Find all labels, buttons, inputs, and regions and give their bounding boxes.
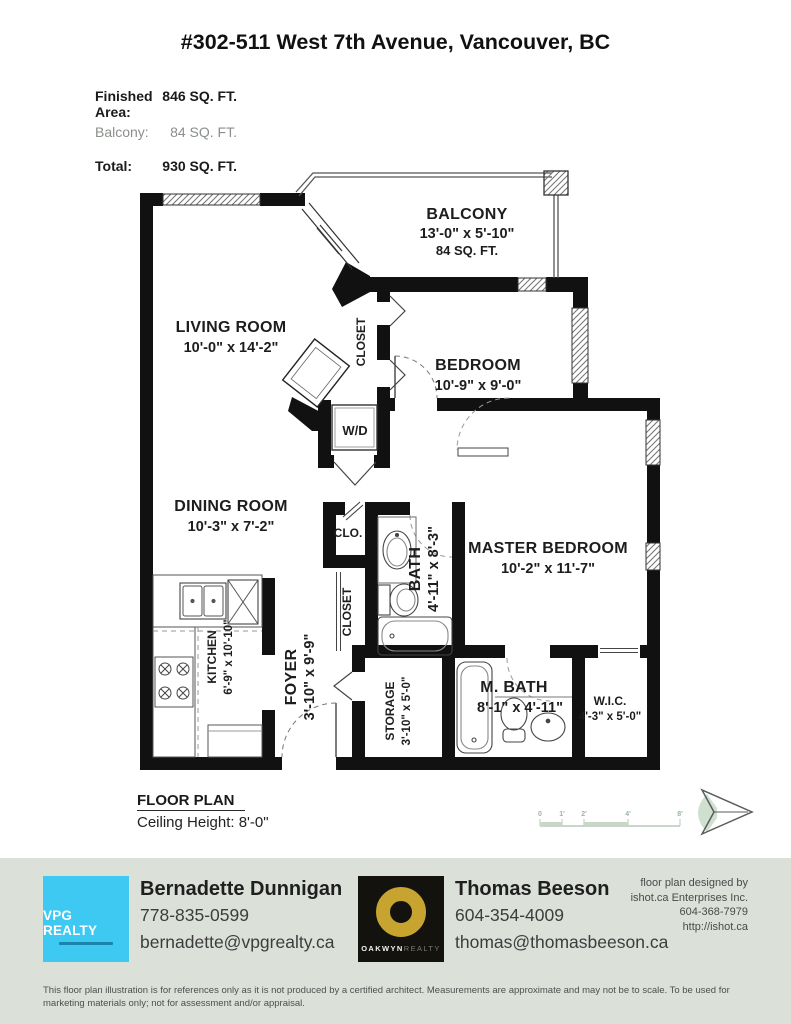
designer-credit: floor plan designed by ishot.ca Enterpri…: [518, 876, 748, 934]
dining-room-label: DINING ROOM: [174, 498, 288, 515]
oakwyn-realty-logo: OAKWYNREALTY: [358, 876, 444, 962]
vpg-realty-logo-text: VPG REALTY: [43, 908, 129, 938]
bedroom-dims: 10'-9" x 9'-0": [435, 378, 522, 394]
balcony-railing: [296, 171, 568, 278]
master-bedroom-label: MASTER BEDROOM: [468, 540, 628, 557]
master-bedroom-dims: 10'-2" x 11'-7": [501, 561, 595, 577]
bath-dims: 4'-11" x 8'-3": [426, 526, 442, 612]
area-label: Balcony:: [95, 124, 149, 140]
oakwyn-logo-text-secondary: REALTY: [404, 944, 441, 953]
living-room-dims: 10'-0" x 14'-2": [184, 340, 279, 356]
scale-tick: 1': [559, 811, 565, 818]
scale-tick: 4': [625, 811, 631, 818]
balcony-area: 84 SQ. FT.: [436, 243, 498, 258]
bedroom-label: BEDROOM: [435, 357, 521, 374]
area-value: 846 SQ. FT.: [159, 88, 237, 120]
area-label: Total:: [95, 158, 132, 174]
master-bath-label: M. BATH: [480, 679, 548, 696]
area-row-balcony: Balcony: 84 SQ. FT.: [95, 124, 237, 140]
balcony-label: BALCONY: [426, 206, 507, 223]
living-room-label: LIVING ROOM: [176, 319, 287, 336]
page-title: #302-511 West 7th Avenue, Vancouver, BC: [0, 30, 791, 55]
foyer-dims: 3'-10" x 9'-9": [302, 634, 318, 721]
balcony-dims: 13'-0" x 5'-10": [420, 226, 515, 242]
vpg-realty-logo: VPG REALTY: [43, 876, 129, 962]
credit-line: 604-368-7979: [518, 905, 748, 920]
vpg-tagline-illegible: [59, 942, 113, 945]
storage-dims: 3'-10" x 5'-0": [401, 677, 413, 746]
scale-tick: 2': [581, 811, 587, 818]
credit-line: ishot.ca Enterprises Inc.: [518, 891, 748, 906]
scale-bar: 0 1' 2' 4' 8': [538, 811, 683, 826]
master-bath-dims: 8'-1" x 4'-11": [477, 700, 563, 716]
area-label: Finished Area:: [95, 88, 159, 120]
clo-label: CLO.: [334, 526, 363, 540]
area-value: 84 SQ. FT.: [159, 124, 237, 140]
credit-line: http://ishot.ca: [518, 920, 748, 935]
wic-label: W.I.C.: [594, 694, 627, 708]
dining-room-dims: 10'-3" x 7'-2": [188, 519, 275, 535]
plan-caption-title: FLOOR PLAN: [137, 792, 245, 811]
wic-dims: 4'-3" x 5'-0": [579, 711, 641, 723]
scale-tick: 8': [677, 811, 683, 818]
storage-label: STORAGE: [383, 681, 397, 740]
foyer-label: FOYER: [283, 649, 300, 706]
plan-caption-ceiling: Ceiling Height: 8'-0": [137, 814, 269, 831]
oakwyn-ring-icon: [376, 887, 426, 937]
scale-tick: 0: [538, 811, 542, 818]
foyer-closet-label: CLOSET: [340, 587, 354, 636]
bedroom-closet-label: CLOSET: [354, 317, 368, 366]
credit-line: floor plan designed by: [518, 876, 748, 891]
fireplace: [283, 339, 350, 407]
floorplan-flyer-page: { "header": { "title": "#302-511 West 7t…: [0, 0, 791, 1024]
wd-label: W/D: [342, 423, 367, 438]
scale-and-compass: 0 1' 2' 4' 8': [535, 780, 765, 850]
floorplan-drawing: BALCONY 13'-0" x 5'-10" 84 SQ. FT. LIVIN…: [140, 165, 665, 795]
area-row-finished: Finished Area: 846 SQ. FT.: [95, 88, 237, 120]
kitchen-label: KITCHEN: [205, 630, 219, 683]
plan-caption: FLOOR PLAN Ceiling Height: 8'-0": [137, 792, 269, 831]
oakwyn-logo-text: OAKWYNREALTY: [361, 944, 441, 953]
oakwyn-logo-text-primary: OAKWYN: [361, 944, 404, 953]
kitchen-dims: 6'-9" x 10'-10": [223, 619, 235, 694]
patio-slider: [302, 203, 359, 269]
disclaimer-text: This floor plan illustration is for refe…: [43, 984, 755, 1010]
bath-label: BATH: [407, 547, 424, 591]
north-arrow-icon: [698, 790, 752, 834]
